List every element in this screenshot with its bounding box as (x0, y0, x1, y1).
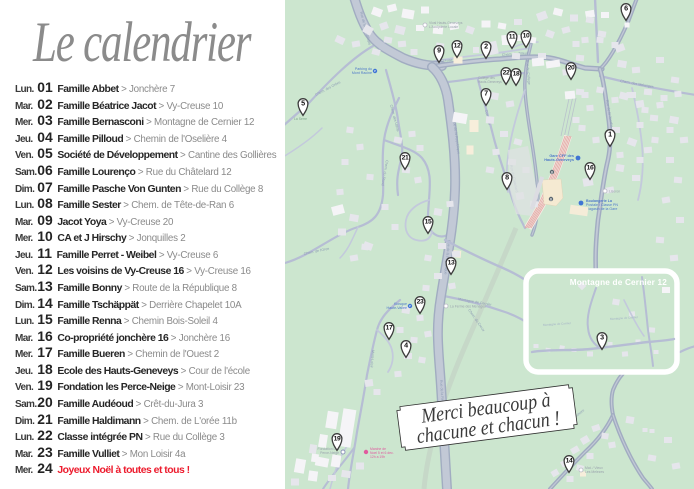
svg-text:12h a 19h: 12h a 19h (370, 455, 385, 459)
svg-text:13: 13 (448, 260, 455, 267)
svg-text:Perce-Neige: Perce-Neige (320, 451, 339, 455)
svg-text:19: 19 (334, 436, 341, 443)
svg-text:10: 10 (523, 33, 530, 40)
svg-text:20: 20 (568, 65, 575, 72)
svg-text:La Serre: La Serre (294, 117, 307, 121)
svg-text:P: P (409, 304, 411, 308)
svg-text:18: 18 (513, 71, 520, 78)
svg-text:12: 12 (454, 43, 461, 50)
svg-text:4: 4 (404, 341, 408, 350)
svg-text:8: 8 (505, 173, 509, 182)
svg-text:L'Acclyderie Locale: L'Acclyderie Locale (429, 25, 458, 29)
svg-text:15: 15 (425, 219, 432, 226)
svg-text:Hauts-Geneveys: Hauts-Geneveys (478, 80, 502, 84)
svg-text:La Ferme des Menages: La Ferme des Menages (450, 304, 486, 308)
svg-text:17: 17 (386, 325, 393, 332)
svg-text:6: 6 (624, 4, 628, 13)
svg-text:Haute-Vallee: Haute-Vallee (386, 306, 407, 310)
svg-text:P: P (374, 69, 376, 73)
svg-text:21: 21 (402, 155, 409, 162)
svg-text:1: 1 (608, 130, 612, 139)
svg-text:Liseron: Liseron (609, 189, 620, 193)
svg-text:Magasin de la Gare: Magasin de la Gare (586, 207, 617, 211)
svg-text:22: 22 (503, 70, 510, 77)
svg-text:Montagne de Cernier 12: Montagne de Cernier 12 (570, 278, 667, 287)
svg-text:7: 7 (484, 89, 488, 98)
svg-text:14: 14 (566, 458, 573, 465)
svg-text:Hauts-Geneveys: Hauts-Geneveys (544, 158, 574, 162)
svg-text:23: 23 (417, 299, 424, 306)
svg-text:2: 2 (484, 42, 488, 51)
svg-text:Les Melezes: Les Melezes (585, 470, 604, 474)
svg-text:3: 3 (600, 333, 604, 342)
svg-text:9: 9 (437, 46, 441, 55)
svg-text:11: 11 (509, 34, 516, 41)
svg-text:Mont Racine: Mont Racine (352, 71, 372, 75)
svg-text:16: 16 (587, 165, 594, 172)
svg-text:5: 5 (301, 99, 305, 108)
